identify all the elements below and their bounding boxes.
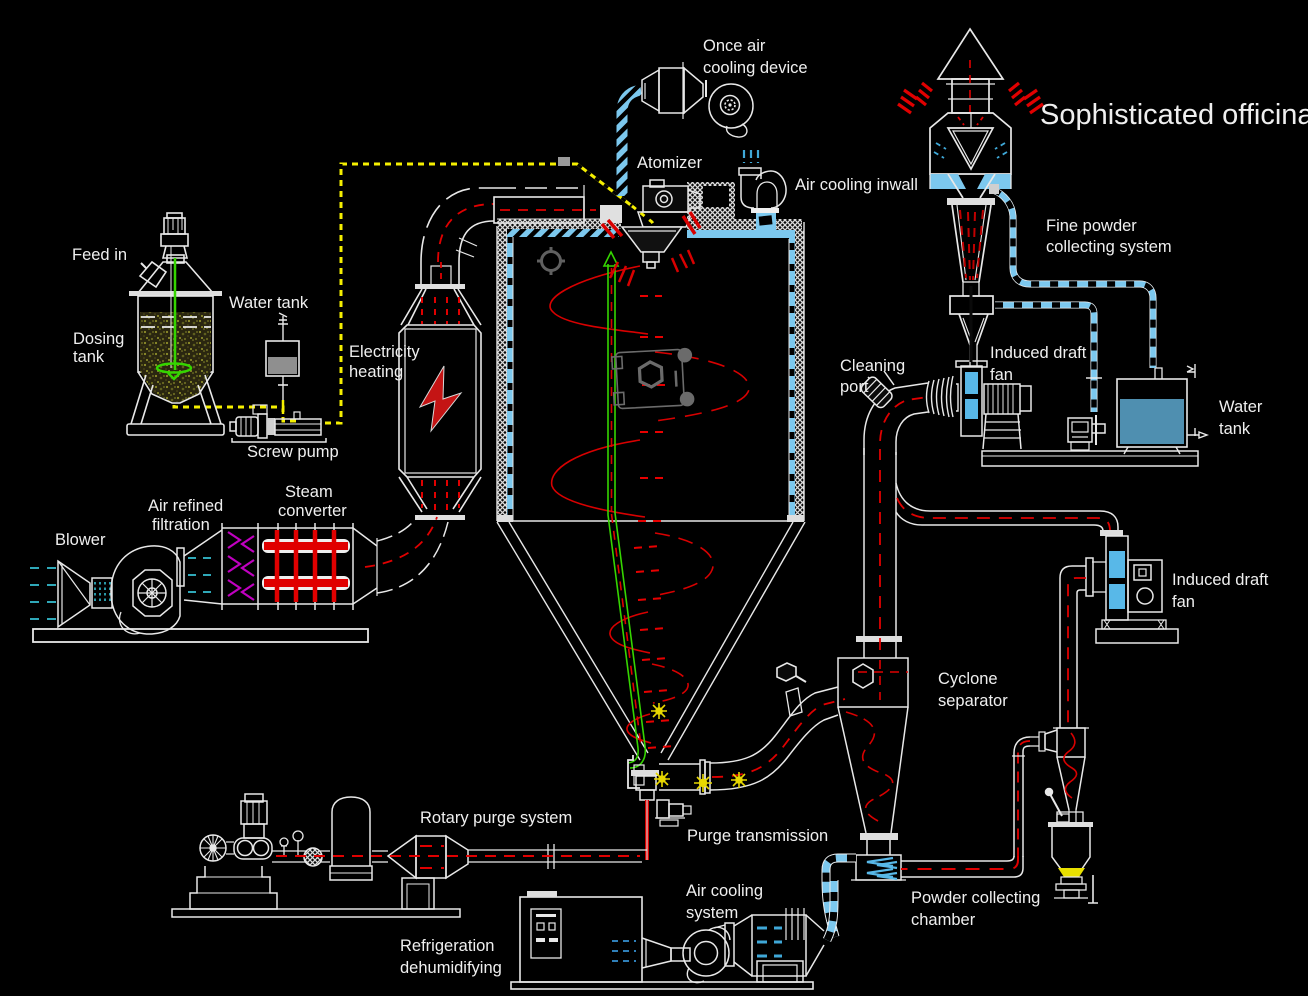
svg-text:Powder collecting: Powder collecting xyxy=(911,889,1040,907)
svg-text:system: system xyxy=(686,904,738,922)
svg-text:fan: fan xyxy=(990,366,1013,384)
svg-text:Air cooling: Air cooling xyxy=(686,882,763,900)
svg-text:Atomizer: Atomizer xyxy=(637,154,703,172)
svg-text:Refrigeration: Refrigeration xyxy=(400,937,494,955)
svg-text:dehumidifying: dehumidifying xyxy=(400,959,502,977)
svg-text:Dosing: Dosing xyxy=(73,330,124,348)
svg-text:tank: tank xyxy=(1219,420,1251,438)
svg-text:Water tank: Water tank xyxy=(229,294,309,312)
svg-text:Water: Water xyxy=(1219,398,1263,416)
svg-text:separator: separator xyxy=(938,692,1008,710)
svg-text:Cyclone: Cyclone xyxy=(938,670,998,688)
svg-text:Once air: Once air xyxy=(703,37,766,55)
svg-text:Sophisticated officina: Sophisticated officina xyxy=(1040,99,1308,131)
svg-text:Fine powder: Fine powder xyxy=(1046,217,1137,235)
svg-text:fan: fan xyxy=(1172,593,1195,611)
svg-text:collecting system: collecting system xyxy=(1046,238,1172,256)
svg-text:Rotary purge system: Rotary purge system xyxy=(420,809,572,827)
svg-text:Purge transmission: Purge transmission xyxy=(687,827,828,845)
svg-text:Cleaning: Cleaning xyxy=(840,357,905,375)
svg-text:heating: heating xyxy=(349,363,403,381)
svg-text:cooling device: cooling device xyxy=(703,59,808,77)
svg-text:Induced draft: Induced draft xyxy=(1172,571,1269,589)
svg-text:filtration: filtration xyxy=(152,516,210,534)
svg-text:port: port xyxy=(840,378,869,396)
svg-text:converter: converter xyxy=(278,502,347,520)
svg-text:Electricity: Electricity xyxy=(349,343,420,361)
svg-text:Feed in: Feed in xyxy=(72,246,127,264)
svg-text:tank: tank xyxy=(73,348,105,366)
svg-text:Screw pump: Screw pump xyxy=(247,443,339,461)
svg-text:Air cooling inwall: Air cooling inwall xyxy=(795,176,918,194)
svg-text:Steam: Steam xyxy=(285,483,333,501)
svg-text:Induced draft: Induced draft xyxy=(990,344,1087,362)
svg-text:Blower: Blower xyxy=(55,531,106,549)
svg-text:Air refined: Air refined xyxy=(148,497,223,515)
svg-text:chamber: chamber xyxy=(911,911,976,929)
